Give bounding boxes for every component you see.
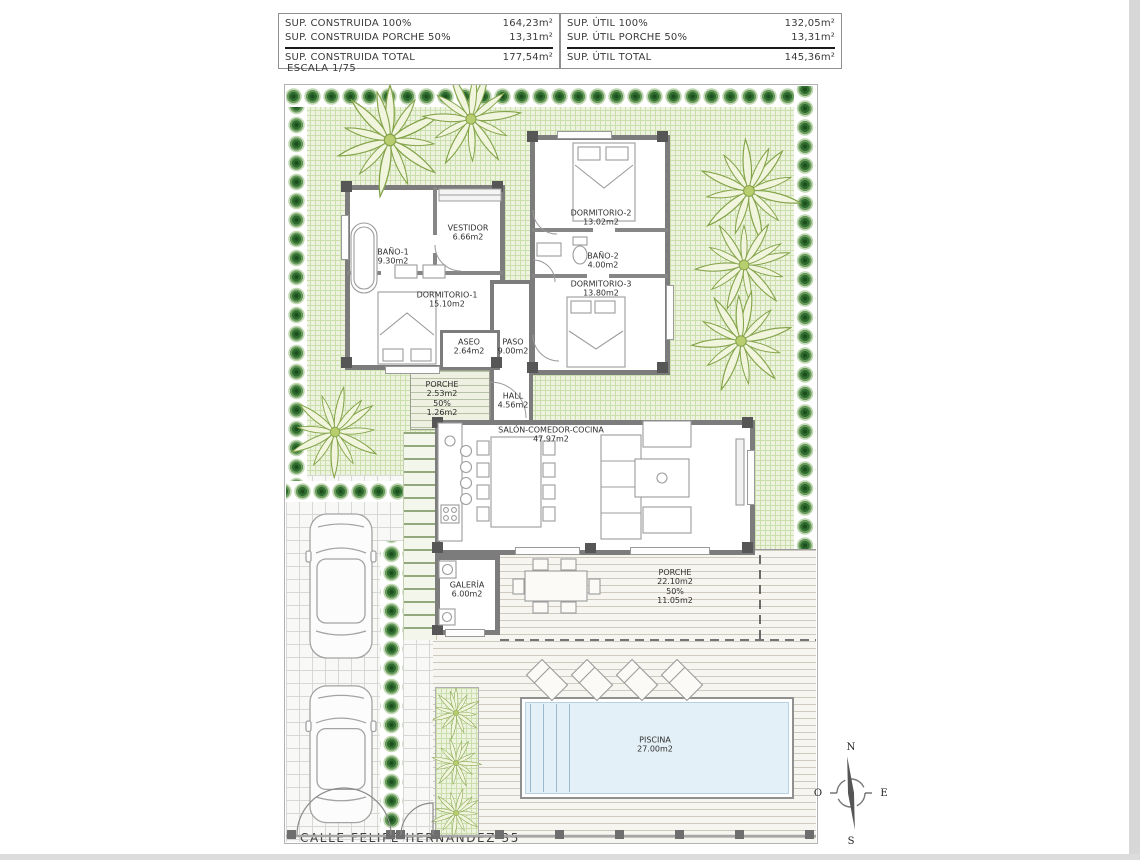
room-label-porche-trasero: PORCHE 22.10m2 50% 11.05m2 <box>657 568 693 606</box>
table-total-row: SUP. ÚTIL TOTAL 145,36m² <box>567 47 835 65</box>
compass-south-label: S <box>848 836 855 847</box>
row-value: 164,23m² <box>503 17 553 31</box>
room-area: 15.10m2 <box>417 300 478 309</box>
room-name: DORMITORIO-3 <box>571 280 632 289</box>
built-surface-table: SUP. CONSTRUIDA 100% 164,23m² SUP. CONST… <box>278 13 560 69</box>
room-area-50: 1.26m2 <box>426 408 459 417</box>
room-area: 6.00m2 <box>450 590 485 599</box>
row-label: SUP. CONSTRUIDA 100% <box>285 17 412 31</box>
sliding-door <box>515 547 580 555</box>
row-value: 145,36m² <box>785 51 835 65</box>
room-name: PISCINA <box>637 736 673 745</box>
compass-west-label: O <box>814 788 822 799</box>
row-label: SUP. ÚTIL 100% <box>567 17 648 31</box>
room-area: 4.00m2 <box>587 261 618 270</box>
row-value: 132,05m² <box>785 17 835 31</box>
room-name: PORCHE <box>657 568 693 577</box>
room-area: 13.02m2 <box>571 218 632 227</box>
useful-surface-table: SUP. ÚTIL 100% 132,05m² SUP. ÚTIL PORCHE… <box>560 13 842 69</box>
street-label: CALLE FELIPE HERNÁNDEZ 35 <box>300 831 520 845</box>
room-percent: 50% <box>657 587 693 596</box>
room-label-aseo: ASEO 2.64m2 <box>454 338 485 357</box>
table-row: SUP. CONSTRUIDA PORCHE 50% 13,31m² <box>285 31 553 45</box>
window <box>666 285 674 340</box>
room-area: 4.56m2 <box>498 401 529 410</box>
room-name: SALÓN-COMEDOR-COCINA <box>498 426 604 435</box>
room-area: 9.00m2 <box>498 347 529 356</box>
room-label-salon: SALÓN-COMEDOR-COCINA 47.97m2 <box>498 426 604 445</box>
room-label-piscina: PISCINA 27.00m2 <box>637 736 673 755</box>
palm-planting-bed <box>435 687 479 837</box>
row-value: 177,54m² <box>503 51 553 65</box>
room-area: 22.10m2 <box>657 578 693 587</box>
room-label-bano2: BAÑO-2 4.00m2 <box>587 252 618 271</box>
hedge-strip-vertical <box>380 541 403 833</box>
hedge-border-left <box>286 107 307 485</box>
scan-edge-right <box>1129 0 1140 860</box>
table-row: SUP. ÚTIL 100% 132,05m² <box>567 17 835 31</box>
site-plan: BAÑO-1 9.30m2 VESTIDOR 6.66m2 DORMITORIO… <box>284 84 818 844</box>
room-area: 2.53m2 <box>426 390 459 399</box>
window <box>747 450 755 505</box>
scale-label: ESCALA 1/75 <box>287 63 356 74</box>
room-area: 47.97m2 <box>498 435 604 444</box>
sliding-door <box>630 547 710 555</box>
room-label-dormitorio2: DORMITORIO-2 13.02m2 <box>571 209 632 228</box>
room-area: 13.80m2 <box>571 289 632 298</box>
floor-plan-sheet: SUP. CONSTRUIDA 100% 164,23m² SUP. CONST… <box>0 0 1140 860</box>
room-label-paso: PASO 9.00m2 <box>498 338 529 357</box>
room-area: 9.30m2 <box>377 257 408 266</box>
window <box>445 629 485 637</box>
room-label-hall: HALL 4.56m2 <box>498 392 529 411</box>
row-label: SUP. ÚTIL PORCHE 50% <box>567 31 687 45</box>
room-name: DORMITORIO-1 <box>417 291 478 300</box>
row-label: SUP. CONSTRUIDA PORCHE 50% <box>285 31 451 45</box>
room-area: 2.64m2 <box>454 347 485 356</box>
room-name: PASO <box>498 338 529 347</box>
table-row: SUP. CONSTRUIDA 100% 164,23m² <box>285 17 553 31</box>
room-label-vestidor: VESTIDOR 6.66m2 <box>448 224 489 243</box>
hedge-border-top <box>286 86 795 107</box>
room-name: BAÑO-1 <box>377 248 408 257</box>
compass-needle <box>844 756 858 830</box>
window <box>341 215 349 260</box>
scan-edge-bottom <box>0 854 1140 860</box>
row-value: 13,31m² <box>509 31 553 45</box>
window <box>385 366 440 374</box>
room-area-50: 11.05m2 <box>657 596 693 605</box>
compass-rose: N S O E <box>806 738 896 848</box>
room-name: BAÑO-2 <box>587 252 618 261</box>
row-value: 13,31m² <box>791 31 835 45</box>
compass-north-label: N <box>847 742 856 753</box>
room-area: 6.66m2 <box>448 233 489 242</box>
room-percent: 50% <box>426 399 459 408</box>
room-label-dormitorio3: DORMITORIO-3 13.80m2 <box>571 280 632 299</box>
table-row: SUP. ÚTIL PORCHE 50% 13,31m² <box>567 31 835 45</box>
room-label-dormitorio1: DORMITORIO-1 15.10m2 <box>417 291 478 310</box>
room-name: PORCHE <box>426 380 459 389</box>
room-name: DORMITORIO-2 <box>571 209 632 218</box>
room-area: 27.00m2 <box>637 745 673 754</box>
window <box>557 131 612 139</box>
room-label-porche-entrada: PORCHE 2.53m2 50% 1.26m2 <box>426 380 459 418</box>
compass-east-label: E <box>880 788 887 799</box>
stepping-path <box>403 432 437 640</box>
room-name: VESTIDOR <box>448 224 489 233</box>
room-label-bano1: BAÑO-1 9.30m2 <box>377 248 408 267</box>
row-label: SUP. ÚTIL TOTAL <box>567 51 651 65</box>
room-name: HALL <box>498 392 529 401</box>
hedge-border-right <box>794 86 816 549</box>
room-name: GALERÍA <box>450 581 485 590</box>
room-label-galeria: GALERÍA 6.00m2 <box>450 581 485 600</box>
pool-steps <box>530 704 582 792</box>
room-name: ASEO <box>454 338 485 347</box>
